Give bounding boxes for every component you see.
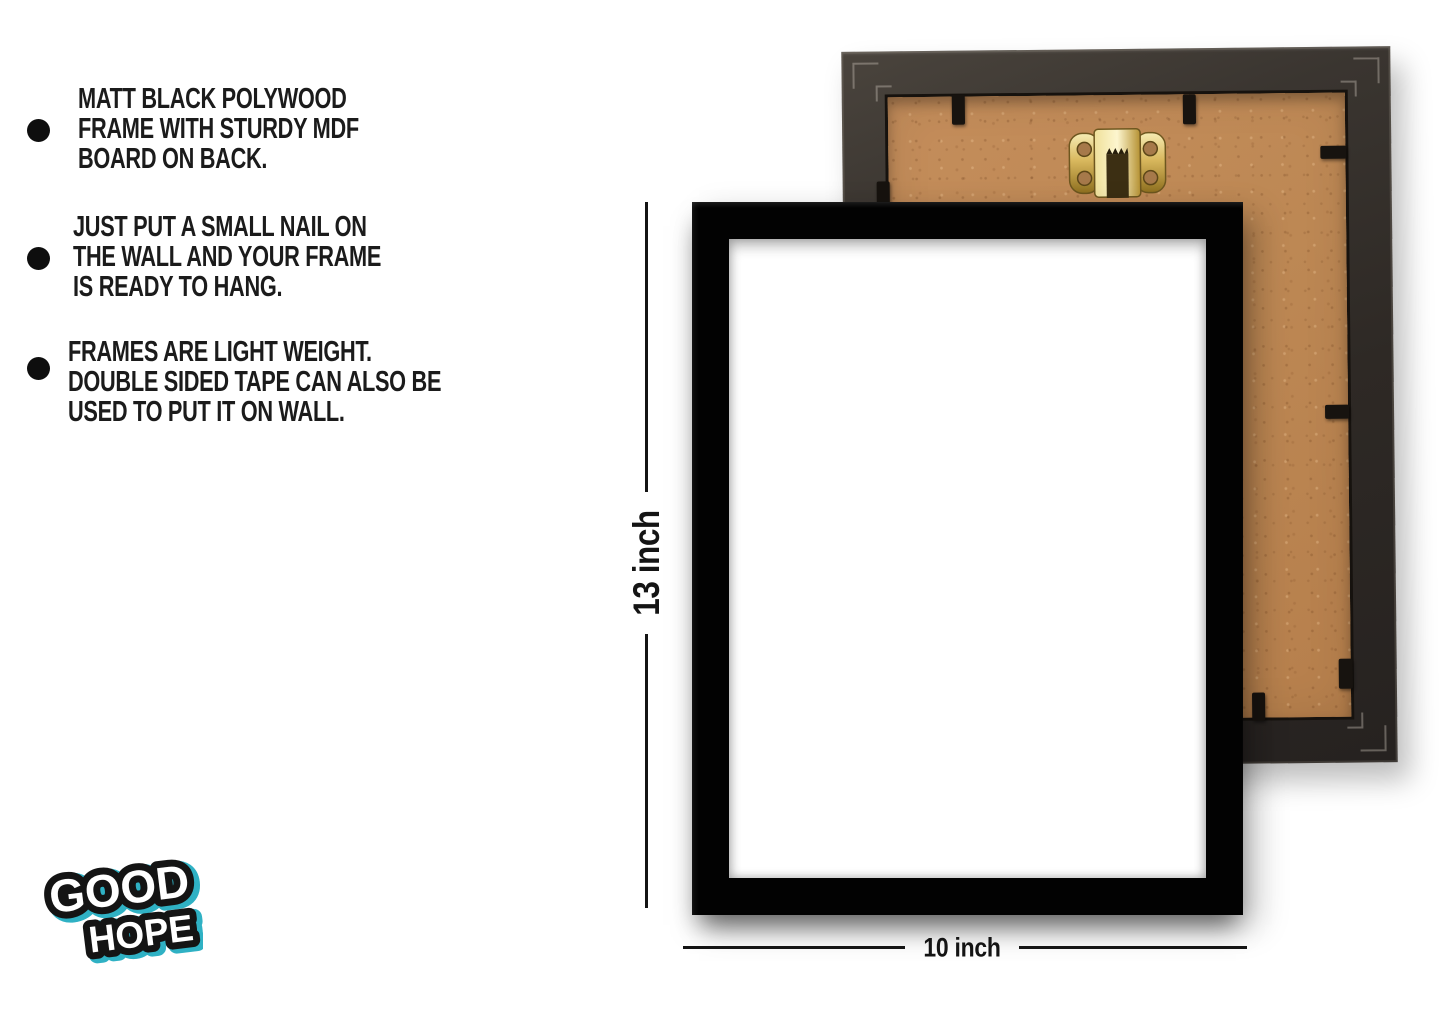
height-dimension-label: 13 inch: [626, 510, 668, 615]
good-hope-logo: GOOD GOOD HOPE HOPE: [38, 856, 203, 976]
bullet-icon: [27, 247, 50, 270]
bullet-icon: [27, 357, 50, 380]
feature-text-material: MATT BLACK POLYWOOD FRAME WITH STURDY MD…: [78, 84, 359, 174]
sawtooth-hanger-icon: [1067, 127, 1168, 198]
retainer-clip: [952, 95, 965, 125]
bullet-icon: [27, 119, 50, 142]
width-dimension-line: [1019, 946, 1247, 949]
vnail-corner-mark: [1360, 725, 1386, 751]
retainer-clip: [1252, 692, 1265, 720]
vnail-corner-mark: [876, 85, 892, 101]
vnail-corner-mark: [1353, 57, 1379, 83]
feature-text-weight: FRAMES ARE LIGHT WEIGHT. DOUBLE SIDED TA…: [68, 337, 441, 427]
width-dimension-label: 10 inch: [923, 933, 1000, 964]
frame-front-opening: [729, 239, 1206, 878]
vnail-corner-mark: [1347, 712, 1363, 728]
width-dimension-line: [683, 946, 905, 949]
feature-text-hanging: JUST PUT A SMALL NAIL ON THE WALL AND YO…: [73, 212, 381, 302]
retainer-clip: [1325, 405, 1349, 419]
retainer-clip: [1183, 94, 1196, 124]
product-infographic: MATT BLACK POLYWOOD FRAME WITH STURDY MD…: [0, 0, 1445, 1025]
height-dimension-line: [645, 202, 648, 492]
frame-front-view: [692, 202, 1243, 915]
retainer-clip: [1320, 146, 1346, 159]
retainer-clip: [1339, 659, 1353, 689]
height-dimension-line: [645, 634, 648, 908]
vnail-corner-mark: [1341, 80, 1357, 96]
